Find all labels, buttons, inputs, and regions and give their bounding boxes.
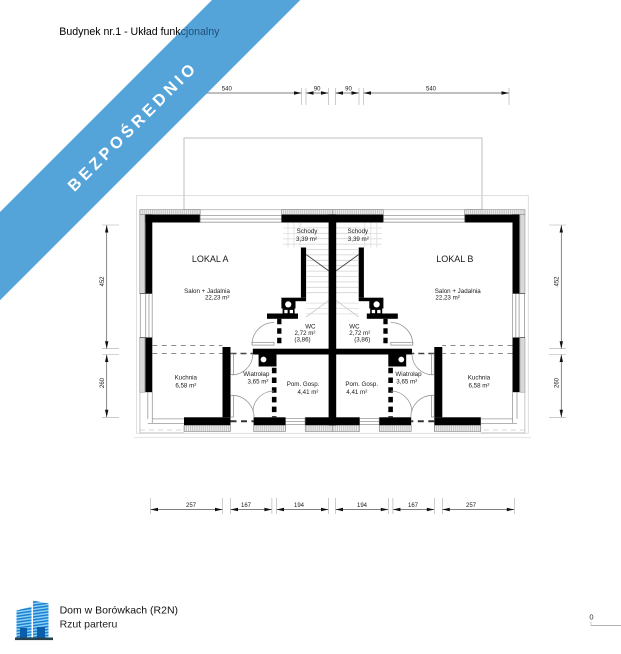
svg-text:540: 540 [426, 87, 437, 93]
svg-text:BEZPOŚREDNIO: BEZPOŚREDNIO [64, 57, 202, 195]
svg-text:90: 90 [345, 87, 352, 93]
svg-text:452: 452 [100, 276, 106, 287]
svg-text:4,41 m²: 4,41 m² [346, 389, 367, 396]
svg-text:260: 260 [100, 377, 106, 388]
svg-text:194: 194 [294, 503, 305, 509]
svg-text:260: 260 [554, 377, 560, 388]
svg-text:Pom. Gosp.: Pom. Gosp. [345, 381, 378, 388]
svg-text:6,58 m²: 6,58 m² [175, 382, 196, 389]
svg-text:3,39 m²: 3,39 m² [296, 236, 317, 243]
svg-text:3,65 m²: 3,65 m² [248, 379, 269, 386]
svg-text:Wiatrołap: Wiatrołap [395, 371, 422, 378]
svg-text:167: 167 [241, 503, 252, 509]
svg-text:4,41 m²: 4,41 m² [298, 389, 319, 396]
svg-text:Pom. Gosp.: Pom. Gosp. [287, 381, 320, 388]
svg-text:Rzut parteru: Rzut parteru [60, 619, 118, 631]
svg-text:Kuchnia: Kuchnia [175, 375, 198, 382]
svg-text:Schody: Schody [347, 228, 369, 235]
svg-text:22,23 m²: 22,23 m² [435, 295, 459, 302]
svg-text:0: 0 [589, 613, 593, 622]
svg-text:540: 540 [222, 87, 233, 93]
svg-text:Kuchnia: Kuchnia [468, 375, 491, 382]
svg-text:3,39 m²: 3,39 m² [348, 236, 369, 243]
svg-text:Wiatrołap: Wiatrołap [243, 371, 270, 378]
svg-text:Schody: Schody [297, 228, 319, 235]
svg-text:90: 90 [314, 87, 321, 93]
svg-text:LOKAL A: LOKAL A [192, 254, 229, 264]
svg-text:167: 167 [408, 503, 419, 509]
svg-text:LOKAL B: LOKAL B [436, 254, 473, 264]
svg-text:Dom w Borówkach (R2N): Dom w Borówkach (R2N) [60, 605, 178, 617]
svg-text:452: 452 [554, 276, 560, 287]
svg-text:(3,86): (3,86) [294, 337, 310, 344]
svg-text:3,65 m²: 3,65 m² [396, 379, 417, 386]
svg-text:6,58 m²: 6,58 m² [469, 382, 490, 389]
svg-text:257: 257 [186, 503, 197, 509]
svg-text:194: 194 [357, 503, 368, 509]
svg-text:(3,86): (3,86) [354, 337, 370, 344]
svg-text:Budynek nr.1 - Układ funkcjona: Budynek nr.1 - Układ funkcjonalny [59, 26, 220, 38]
svg-text:22,23 m²: 22,23 m² [205, 295, 229, 302]
svg-text:257: 257 [466, 503, 477, 509]
